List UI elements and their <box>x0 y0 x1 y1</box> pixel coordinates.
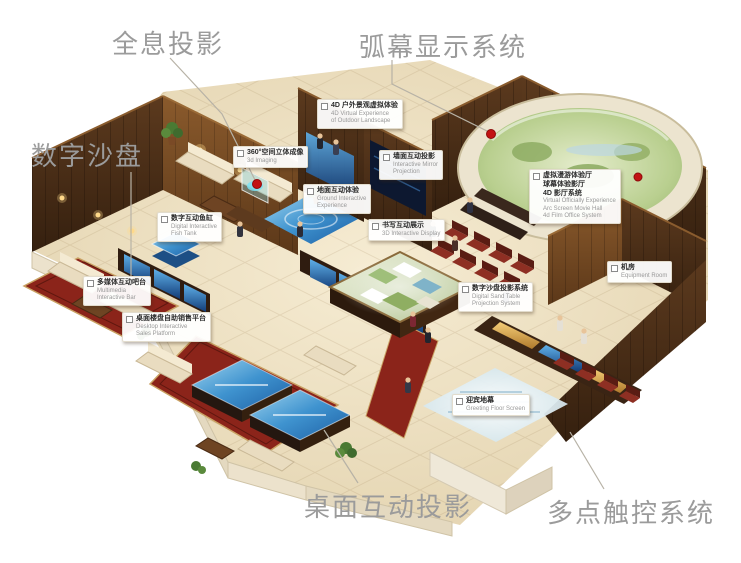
callout-sand-projection: 数字沙盘投影系统 Digital Sand Table Projection S… <box>458 282 533 312</box>
checkbox-icon <box>383 154 390 161</box>
callout-zh: 墙面互动投影 <box>393 153 435 162</box>
callout-en: Interactive Bar <box>97 295 146 303</box>
callout-ground-interactive: 地面互动体验 Ground Interactive Experience <box>303 184 371 214</box>
callout-zh: 地面互动体验 <box>317 187 359 196</box>
callout-en: Experience <box>317 203 366 211</box>
callout-desktop-sales: 桌面楼盘自助销售平台 Desktop Interactive Sales Pla… <box>122 312 211 342</box>
checkbox-icon <box>611 265 618 272</box>
callout-zh: 桌面楼盘自助销售平台 <box>136 315 206 324</box>
callout-zh: 360°空间立体成像 <box>247 149 303 158</box>
checkbox-icon <box>462 286 469 293</box>
callout-en: of Outdoor Landscape <box>331 118 398 126</box>
callout-zh: 虚拟漫游体验厅 <box>543 172 592 181</box>
callout-en: Interactive Mirror <box>393 162 438 170</box>
leader-multitouch <box>570 432 604 489</box>
callout-en: Sales Platform <box>136 331 206 339</box>
red-marker-dot <box>253 180 262 189</box>
callout-en: Fish Tank <box>171 231 217 239</box>
callout-en: Greeting Floor Screen <box>466 406 525 414</box>
label-sand-table: 数字沙盘 <box>31 136 143 173</box>
callout-en: 4D Virtual Experience <box>331 111 398 119</box>
callout-zh: 4D 影厅系统 <box>543 190 616 199</box>
callout-en: Virtual Officially Experience <box>543 198 616 206</box>
callout-zh: 4D 户外景观虚拟体验 <box>331 102 398 111</box>
callout-equipment-room: 机房 Equipment Room <box>607 261 672 283</box>
checkbox-icon <box>161 216 168 223</box>
callout-zh: 机房 <box>621 264 635 273</box>
callout-en: Desktop Interactive <box>136 324 206 332</box>
callout-zh: 球幕体验影厅 <box>543 181 616 190</box>
callout-writing-display: 书写互动展示 3D Interactive Display <box>368 219 445 241</box>
checkbox-icon <box>237 150 244 157</box>
callout-zh: 多媒体互动吧台 <box>97 279 146 288</box>
potted-plant <box>191 461 206 474</box>
callout-vr-theater: 虚拟漫游体验厅 球幕体验影厅 4D 影厅系统 Virtual Officiall… <box>529 169 621 224</box>
callout-en: Projection <box>393 169 438 177</box>
callout-multimedia-bar: 多媒体互动吧台 Multimedia Interactive Bar <box>83 276 151 306</box>
label-desktop-projection: 桌面互动投影 <box>304 487 472 524</box>
callout-en: 3d Imaging <box>247 158 303 166</box>
checkbox-icon <box>87 280 94 287</box>
callout-en: Multimedia <box>97 288 146 296</box>
callout-en: 3D Interactive Display <box>382 231 440 239</box>
callout-greeting-floor: 迎宾地幕 Greeting Floor Screen <box>452 394 530 416</box>
red-marker-dot <box>634 173 642 181</box>
checkbox-icon <box>307 188 314 195</box>
checkbox-icon <box>456 398 463 405</box>
exhibition-hall-infographic: 全息投影 弧幕显示系统 数字沙盘 桌面互动投影 多点触控系统 4D 户外景观虚拟… <box>0 0 741 563</box>
red-marker-dot <box>487 130 496 139</box>
label-arc-screen: 弧幕显示系统 <box>359 27 527 64</box>
label-multitouch: 多点触控系统 <box>547 493 715 530</box>
callout-zh: 数字互动鱼缸 <box>171 215 213 224</box>
callout-fish-tank: 数字互动鱼缸 Digital Interactive Fish Tank <box>157 212 222 242</box>
callout-zh: 迎宾地幕 <box>466 397 494 406</box>
checkbox-icon <box>321 103 328 110</box>
callout-en: Ground Interactive <box>317 196 366 204</box>
callout-imaging-360: 360°空间立体成像 3d Imaging <box>233 146 308 168</box>
checkbox-icon <box>533 173 540 180</box>
callout-en: 4d Film Office System <box>543 213 616 221</box>
callout-en: Arc Screen Movie Hall <box>543 206 616 214</box>
callout-zh: 数字沙盘投影系统 <box>472 285 528 294</box>
callout-en: Equipment Room <box>621 273 667 281</box>
checkbox-icon <box>372 223 379 230</box>
label-holography: 全息投影 <box>112 24 224 61</box>
callout-wall-projection: 墙面互动投影 Interactive Mirror Projection <box>379 150 443 180</box>
callout-en: Projection System <box>472 301 528 309</box>
callout-outdoor-4d: 4D 户外景观虚拟体验 4D Virtual Experience of Out… <box>317 99 403 129</box>
callout-en: Digital Interactive <box>171 224 217 232</box>
checkbox-icon <box>126 316 133 323</box>
callout-zh: 书写互动展示 <box>382 222 424 231</box>
callout-en: Digital Sand Table <box>472 294 528 302</box>
